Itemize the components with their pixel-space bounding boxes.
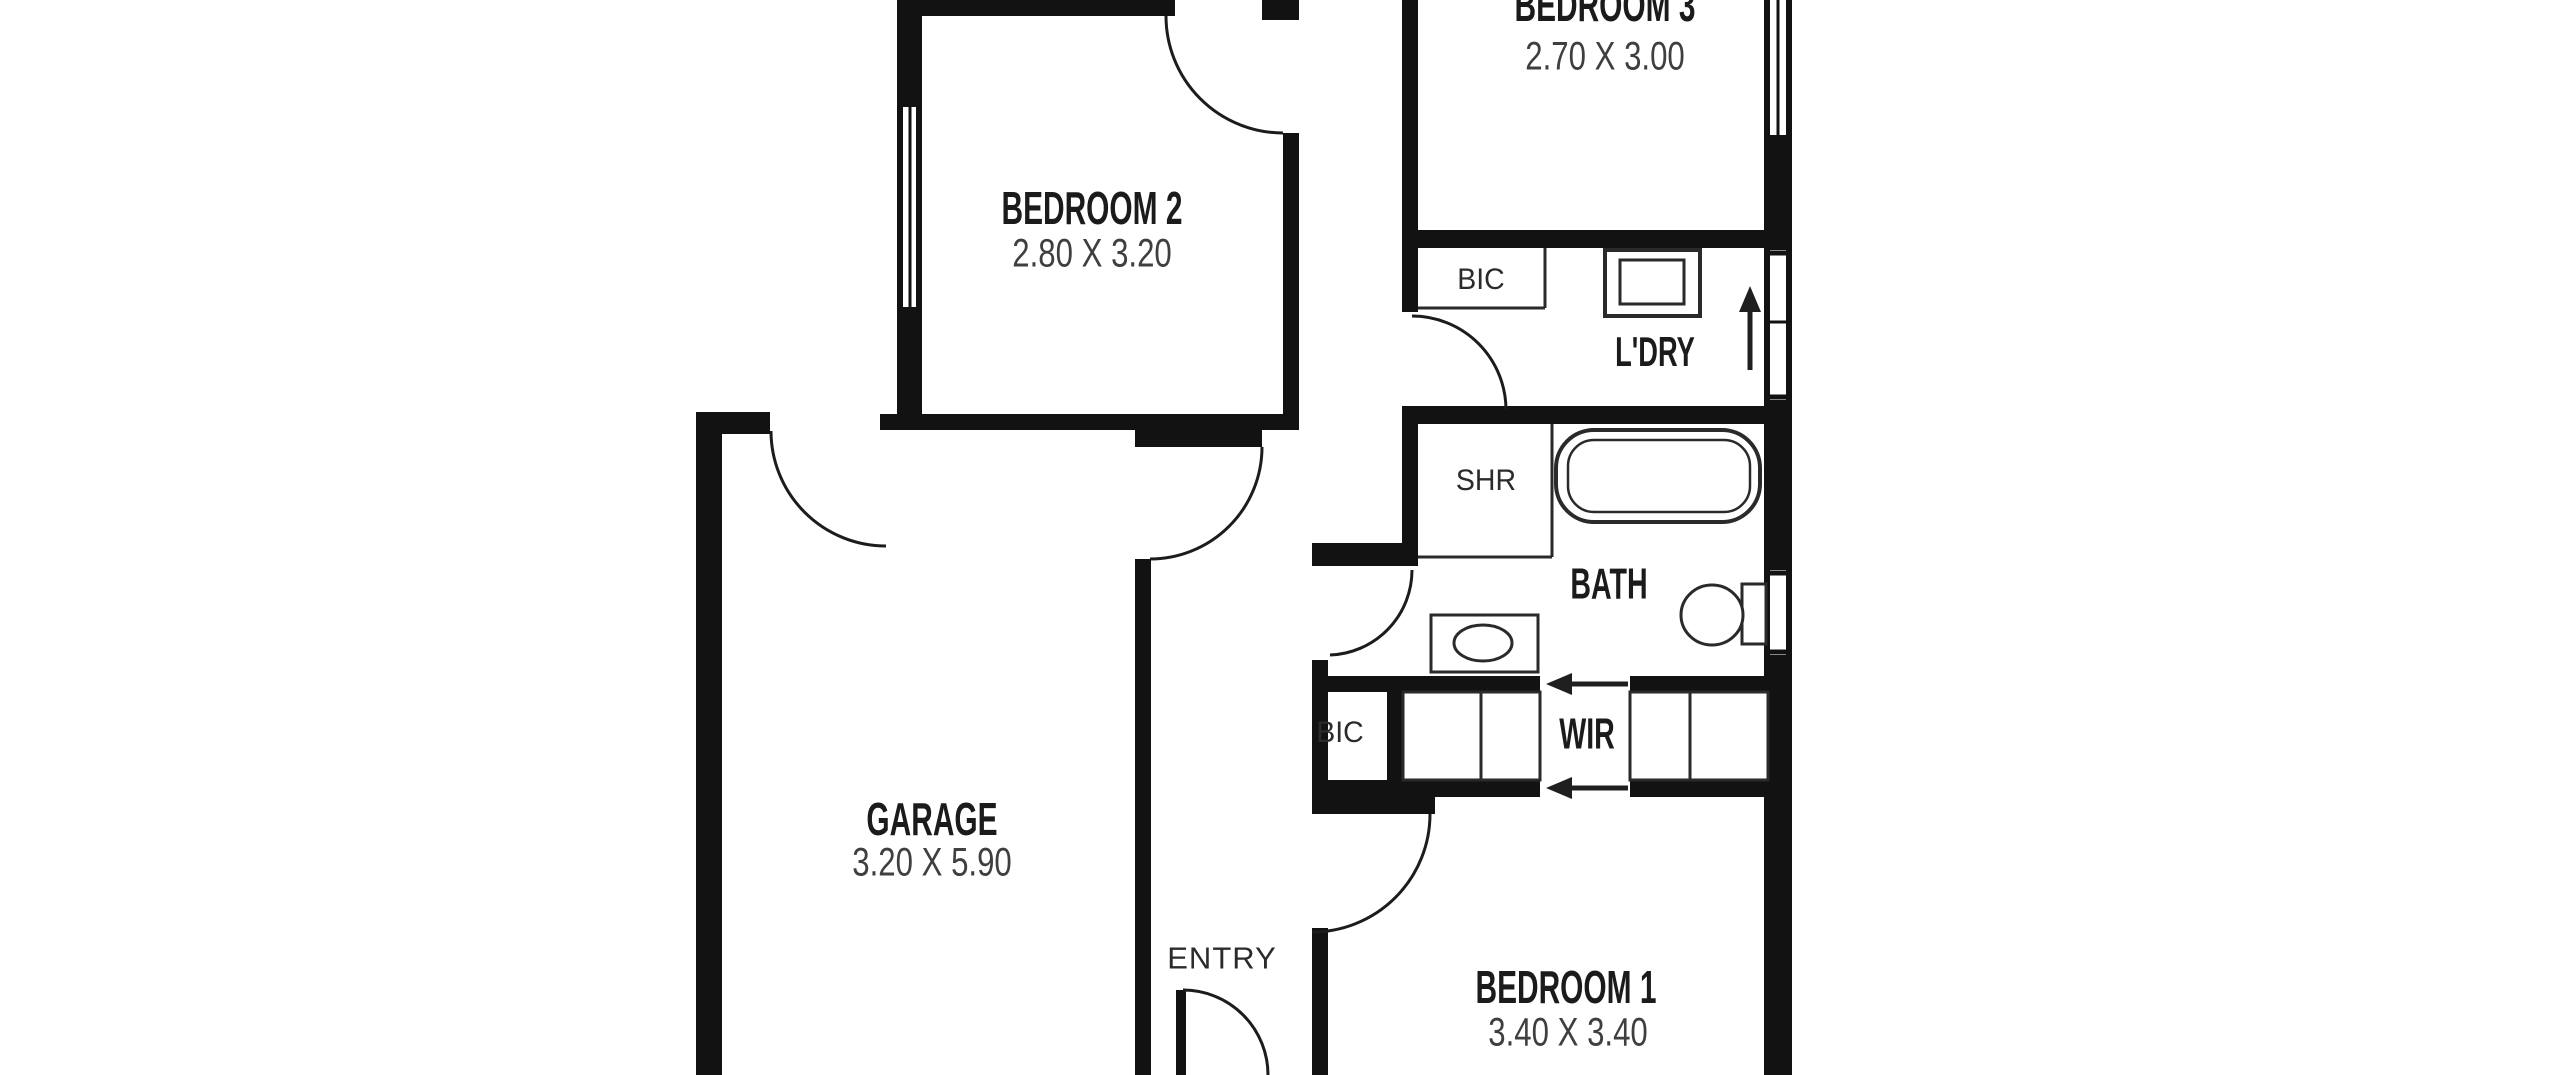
floor-plan-drawing: BEDROOM 3 BEDROOM 2 GARAGE BEDROOM 1 BAT… [0, 0, 2560, 1075]
wall [696, 412, 722, 1075]
room-label-bath: BATH [1570, 558, 1647, 608]
wall [1764, 400, 1792, 570]
door-arc-hall [1150, 447, 1262, 559]
wall [880, 414, 922, 430]
left-arrow-wir-bottom [1546, 777, 1628, 799]
door-arc-bedroom2 [1166, 16, 1283, 133]
vanity-basin [1431, 615, 1538, 672]
room-dims-bedroom1: 3.40 X 3.40 [1488, 1010, 1648, 1055]
wall [1630, 676, 1768, 692]
room-label-wir: WIR [1559, 708, 1615, 758]
window [1764, 570, 1792, 655]
room-label-garage: GARAGE [866, 795, 997, 846]
wall [897, 414, 1299, 430]
room-dims-bedroom2: 2.80 X 3.20 [1012, 231, 1172, 276]
room-dims-garage: 3.20 X 5.90 [852, 840, 1012, 885]
label-bic-wir: BIC [1316, 717, 1363, 750]
wall [1312, 928, 1328, 1075]
wall [1262, 0, 1299, 20]
door-arc-garage [771, 431, 886, 546]
left-arrow-wir-top [1546, 673, 1628, 695]
wall [1283, 133, 1299, 430]
wall [897, 307, 922, 430]
room-dimensions: 2.70 X 3.00 2.80 X 3.20 3.20 X 5.90 3.40… [852, 34, 1685, 1055]
door-arc-bath [1330, 570, 1412, 655]
room-label-bedroom1: BEDROOM 1 [1475, 963, 1656, 1014]
door-arc-entry [1183, 990, 1268, 1075]
wall [1312, 780, 1540, 797]
door-arc-laundry [1412, 316, 1506, 410]
wall [1312, 543, 1404, 566]
window [1764, 250, 1792, 400]
toilet [1681, 584, 1766, 645]
door-arc-bedroom1 [1312, 814, 1430, 932]
entry-door-leaf [1176, 990, 1186, 1075]
room-dims-bedroom3: 2.70 X 3.00 [1525, 34, 1685, 79]
wall [696, 412, 770, 434]
room-label-bedroom3: BEDROOM 3 [1514, 0, 1695, 31]
wall [1387, 692, 1403, 780]
wall [1312, 676, 1540, 692]
window [897, 107, 922, 307]
wall [1764, 135, 1792, 250]
up-arrow-laundry [1739, 286, 1761, 370]
room-label-laundry: L'DRY [1615, 328, 1695, 375]
room-label-bedroom2: BEDROOM 2 [1001, 184, 1182, 235]
wall [897, 0, 922, 107]
wall [1312, 797, 1435, 814]
label-entry: ENTRY [1167, 941, 1277, 976]
label-bic-laundry: BIC [1457, 264, 1504, 297]
window [1767, 0, 1789, 135]
bathtub [1556, 430, 1760, 522]
walls [696, 0, 1792, 1075]
wall [1402, 230, 1768, 248]
wall [1402, 424, 1418, 566]
label-shower: SHR [1456, 465, 1516, 498]
wall [1630, 780, 1768, 797]
wall [1135, 559, 1151, 1075]
wall [897, 0, 1175, 16]
floor-plan: BEDROOM 3 BEDROOM 2 GARAGE BEDROOM 1 BAT… [0, 0, 2560, 1075]
wall [1402, 406, 1768, 424]
wall [1402, 0, 1418, 312]
washing-machine [1605, 250, 1700, 316]
wall [1135, 430, 1262, 447]
